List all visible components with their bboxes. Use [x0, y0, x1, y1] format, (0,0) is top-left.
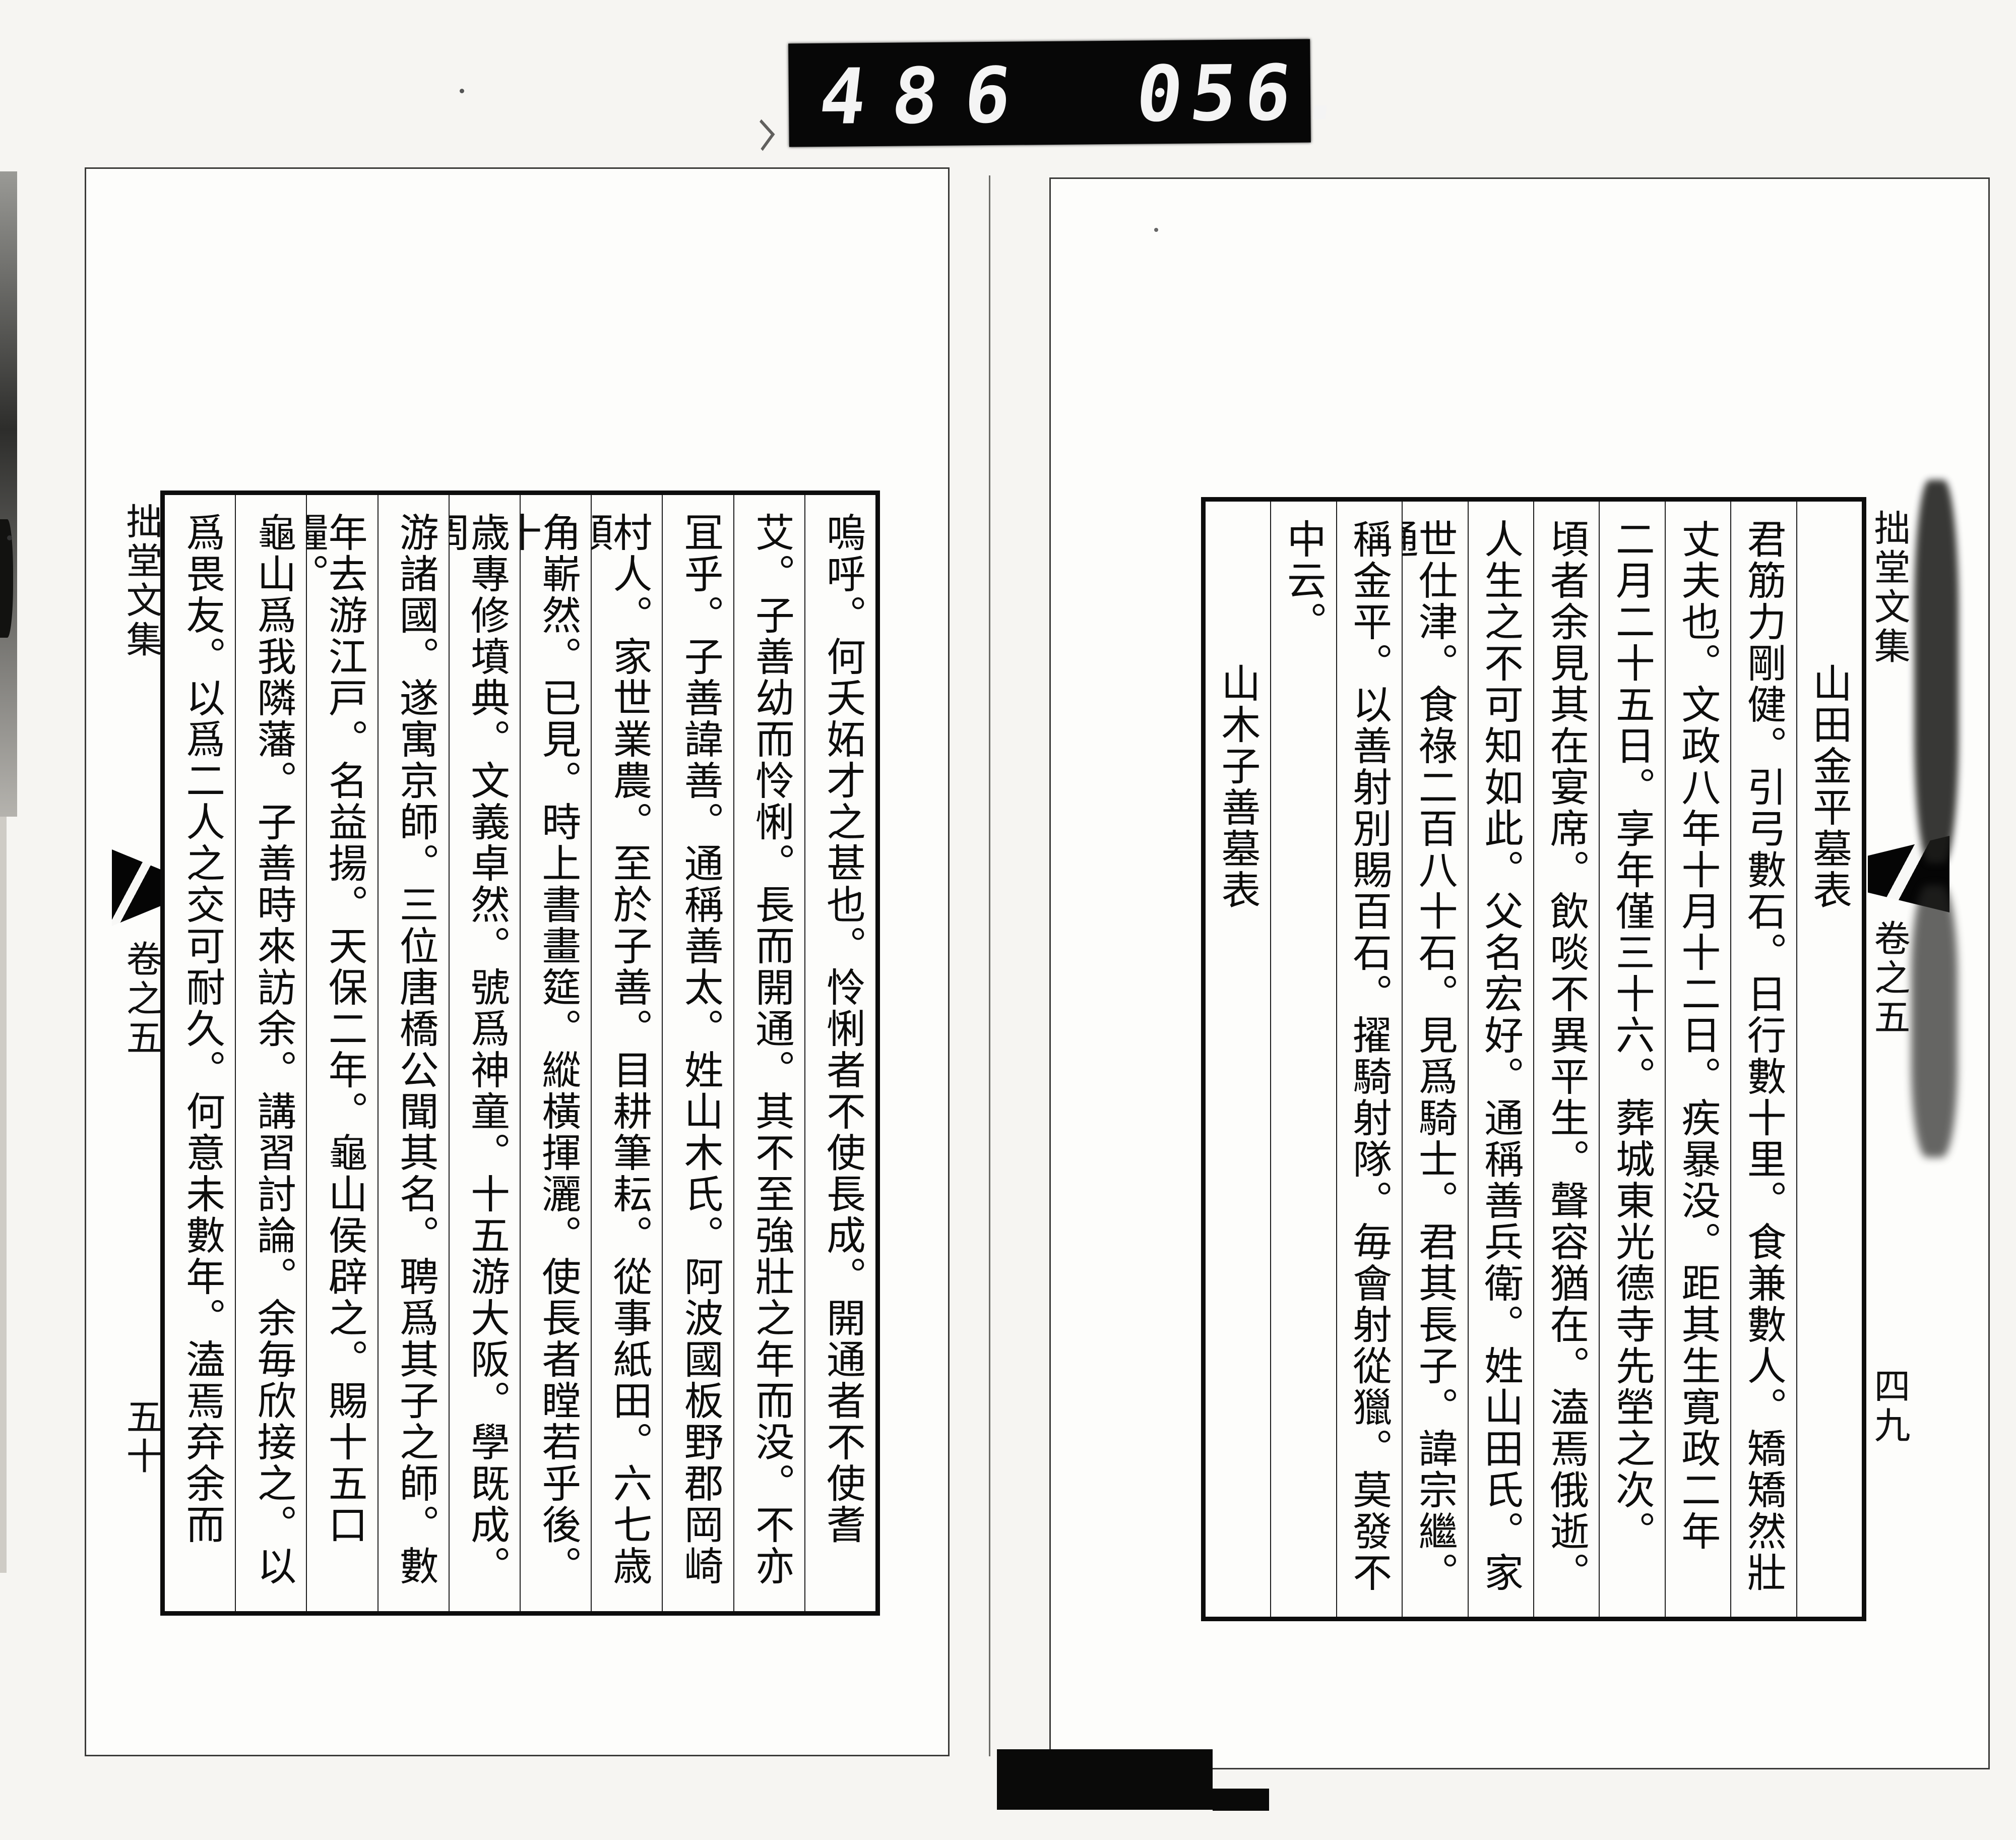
text-column: 年去游江戸。名益揚。天保二年。龜山侯辟之。賜十五口糧。 [306, 495, 377, 1611]
text-column: 角嶄然。已見。時上書畫筵。縱橫揮灑。使長者瞠若乎後。十 [520, 495, 591, 1611]
counter-frame-number: 056. [1131, 48, 1358, 139]
text-column: 龜山爲我隣藩。子善時來訪余。講習討論。余毎欣接之。以 [235, 495, 306, 1611]
text-column: 頃者余見其在宴席。飲啖不異平生。聲容猶在。溘焉俄逝。 [1533, 502, 1599, 1617]
left-page-running-title-column: 拙堂文集 卷之五 五十 [112, 490, 160, 1616]
book-gutter-fold [989, 175, 990, 1756]
scan-bottom-black-nub [1213, 1789, 1269, 1811]
left-folio-number: 五十 [123, 1398, 159, 1477]
scan-edge-shadow [0, 171, 17, 817]
left-running-title: 拙堂文集 [123, 503, 159, 660]
text-column: 丈夫也。文政八年十月十二日。疾暴没。距其生寛政二年 [1665, 502, 1730, 1617]
text-column: 冝乎。子善諱善。通稱善太。姓山木氏。阿波國板野郡岡崎 [662, 495, 733, 1611]
left-page-text-frame: 嗚呼。何夭妬才之甚也。怜悧者不使長成。開通者不使耆 艾。子善幼而怜悧。長而開通。… [160, 490, 880, 1616]
text-column: 世仕津。食祿二百八十石。見爲騎士。君其長子。諱宗繼。通 [1402, 502, 1467, 1617]
text-column: 游諸國。遂寓京師。三位唐橋公聞其名。聘爲其子之師。數 [377, 495, 449, 1611]
text-column: 艾。子善幼而怜悧。長而開通。其不至強壯之年而没。不亦 [733, 495, 804, 1611]
entry-title-yamaki-shizen: 山木子善墓表 [1206, 502, 1270, 1617]
scan-speck [1154, 228, 1158, 232]
text-column: 稱金平。以善射別賜百石。擢騎射隊。毎會射從獵。莫發不 [1336, 502, 1402, 1617]
right-page-columns: 山田金平墓表 君筋力剛健。引弓數石。日行數十里。食兼數人。矯矯然壯 丈夫也。文政… [1206, 502, 1862, 1617]
left-fold-mark-icon [112, 849, 160, 926]
scan-speck [460, 89, 464, 93]
scan-edge-shadow-light [0, 817, 7, 1573]
text-column: 爲畏友。以爲二人之交可耐久。何意未數年。溘焉弃余而 [165, 495, 235, 1611]
text-column: 二月二十五日。享年僅三十六。葬城東光德寺先塋之次。 [1599, 502, 1664, 1617]
text-column: 歳專修墳典。文義卓然。號爲神童。十五游大阪。學既成。周 [449, 495, 520, 1611]
text-column: 嗚呼。何夭妬才之甚也。怜悧者不使長成。開通者不使耆 [804, 495, 875, 1611]
stray-pen-mark [749, 119, 775, 151]
microfilm-scan: 486 056. 拙堂文集 卷之五 四九 山田金平墓表 君筋力剛健。引弓數石。日… [0, 0, 2016, 1840]
left-volume-label: 卷之五 [123, 940, 159, 1058]
frame-counter: 486 056. [788, 39, 1311, 147]
scan-bottom-black-tab [997, 1749, 1213, 1810]
text-column: 人生之不可知如此。父名宏好。通稱善兵衛。姓山田氏。家 [1468, 502, 1533, 1617]
text-column: 村人。家世業農。至於子善。目耕筆耘。從事紙田。六七歳頭 [591, 495, 662, 1611]
entry-title-yamada-kimpei: 山田金平墓表 [1796, 502, 1862, 1617]
right-volume-label: 卷之五 [1871, 919, 1907, 1037]
right-folio-number: 四九 [1871, 1367, 1907, 1446]
counter-reel-number: 486 [815, 50, 1042, 142]
page-edge-smudge-top [1914, 480, 1959, 863]
left-page-columns: 嗚呼。何夭妬才之甚也。怜悧者不使長成。開通者不使耆 艾。子善幼而怜悧。長而開通。… [165, 495, 875, 1611]
right-page-text-frame: 山田金平墓表 君筋力剛健。引弓數石。日行數十里。食兼數人。矯矯然壯 丈夫也。文政… [1201, 497, 1866, 1621]
page-edge-smudge-bottom [1911, 885, 1958, 1157]
right-running-title: 拙堂文集 [1871, 509, 1907, 666]
text-column: 中云。 [1270, 502, 1336, 1617]
text-column: 君筋力剛健。引弓數石。日行數十里。食兼數人。矯矯然壯 [1730, 502, 1796, 1617]
scan-speck [7, 535, 12, 540]
